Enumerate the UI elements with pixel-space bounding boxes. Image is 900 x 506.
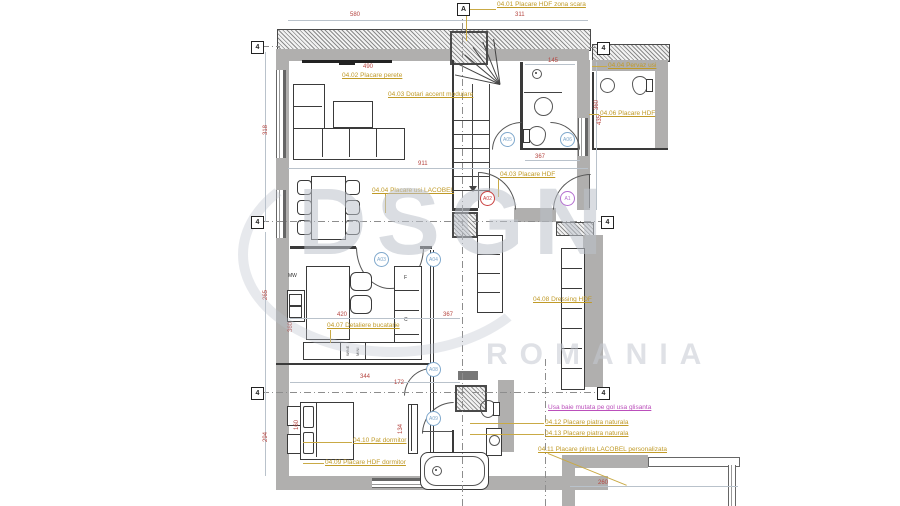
washbasin-bowl: [489, 435, 500, 446]
dim-text: 145: [548, 58, 558, 64]
dining-chair: [297, 200, 312, 215]
dim-text: 294: [263, 432, 269, 442]
dim-line: [288, 20, 588, 21]
wine-label: WINE: [345, 346, 350, 356]
dining-chair: [345, 200, 360, 215]
window-left-1: [276, 70, 286, 158]
door-tag: A06: [560, 132, 575, 147]
dim-line: [525, 64, 575, 65]
wall-wc-bottom: [592, 148, 668, 150]
leader-line: [589, 114, 599, 115]
door-tag: A04: [426, 252, 441, 267]
door-tag: A02: [480, 191, 495, 206]
dim-text: 160: [294, 420, 300, 430]
door-tag: A03: [374, 252, 389, 267]
stair-walkline: [472, 84, 473, 186]
annotation: 04.13 Placare piatra naturala: [545, 430, 628, 437]
grid-line-4-mid: [262, 221, 604, 222]
floor-drain-icon: [532, 69, 542, 79]
door-tag: A1: [560, 191, 575, 206]
toilet-bottom-tank: [493, 402, 500, 416]
floor-drain-dot: [535, 72, 537, 74]
bathtub-drain-dot: [435, 469, 437, 471]
dim-text: 367: [535, 154, 545, 160]
annotation: 04.02 Placare perete: [342, 72, 402, 79]
pillow: [303, 432, 314, 454]
pillow: [303, 406, 314, 428]
microwave-label: MW: [288, 274, 297, 279]
sofa-cushion-line: [322, 129, 323, 157]
sink-top-icon: [534, 97, 553, 116]
dim-text: 360: [594, 100, 600, 110]
detail-wall-thin: [648, 457, 740, 467]
dim-line: [288, 168, 588, 169]
wall-hall-seg: [452, 208, 478, 211]
dim-text: 420: [337, 312, 347, 318]
dining-chair: [345, 220, 360, 235]
blanket-line: [316, 403, 317, 457]
sofa-cushion-line: [376, 129, 377, 157]
dining-chair: [297, 220, 312, 235]
grid-marker-4: 4: [251, 387, 264, 400]
annotation: 04.03 Dotari accent modulare: [388, 91, 473, 98]
dim-line: [596, 62, 597, 210]
dining-table: [311, 176, 346, 240]
dim-line: [290, 318, 460, 319]
dressing-shelf: [562, 288, 582, 289]
dressing-shelf: [562, 308, 582, 309]
coffee-table: [333, 101, 373, 128]
dim-text: 367: [443, 312, 453, 318]
radiator-line: [411, 405, 412, 451]
dim-text: 311: [515, 12, 525, 18]
annotation: 04.09 Placare HDF dormitor: [325, 459, 406, 466]
bathtub-drain: [432, 466, 442, 476]
grid-marker-4: 4: [597, 387, 610, 400]
dim-text: 134: [398, 424, 404, 434]
leader-line: [470, 434, 544, 435]
grid-marker-a: A: [457, 3, 470, 16]
dining-chair: [297, 180, 312, 195]
detail-wall-h: [562, 455, 648, 468]
bar-stool: [350, 272, 372, 291]
closet-shelf: [478, 254, 500, 255]
hall-closet: [477, 235, 503, 313]
sink-wc-icon: [600, 78, 615, 93]
annotation: 04.06 Placare HDF: [600, 110, 655, 117]
toilet-top-tank: [523, 129, 530, 143]
annotation-door-note: Usa baie mutata pe gol usa glisanta: [548, 404, 651, 411]
sofa-cushion-line: [349, 129, 350, 157]
annotation: 04.10 Pat dormitor: [353, 437, 406, 444]
leader-line: [498, 179, 499, 197]
dim-text: 318: [263, 125, 269, 135]
dressing-shelf: [562, 348, 582, 349]
annotation: 04.07 Detaliere bucatarie: [327, 322, 400, 329]
dim-text: 580: [350, 12, 360, 18]
wall-kitchen-top-1: [290, 246, 356, 249]
wall-wc-right: [655, 71, 668, 150]
dim-line: [265, 52, 266, 222]
mini-label: MINI: [355, 348, 360, 356]
grid-marker-4: 4: [251, 41, 264, 54]
radiator: [408, 404, 418, 454]
bar-stool: [350, 295, 372, 314]
leader-line: [303, 463, 324, 464]
dim-text: 265: [263, 290, 269, 300]
tall-unit-line: [395, 310, 419, 311]
leader-line: [303, 442, 352, 443]
annotation: 04.04 Pervaz usi: [608, 62, 656, 69]
wall-bedroom-top: [276, 363, 432, 365]
toilet-top-icon: [528, 126, 546, 146]
nightstand: [287, 434, 301, 454]
tall-unit-line: [395, 334, 419, 335]
annotation: 04.03 Placare HDF: [500, 171, 555, 178]
floor-plan-canvas: DSGN ROMANIA: [0, 0, 900, 506]
dim-text: 911: [418, 161, 428, 167]
annotation: 04.11 Placare plinta LACOBEL personaliza…: [538, 446, 667, 453]
dim-line: [290, 382, 460, 383]
wall-right-mid: [583, 235, 603, 387]
grid-line-4-bottom: [262, 392, 600, 393]
wall-hall: [514, 208, 556, 222]
dressing-shelf: [562, 268, 582, 269]
grid-line-4-top: [262, 46, 280, 47]
dim-line: [525, 160, 580, 161]
annotation: 04.04 Placare usi LACOBEL: [372, 187, 454, 194]
toilet-wc-tank: [646, 79, 653, 92]
grid-line-a: [462, 14, 463, 506]
dim-text: 490: [363, 64, 373, 70]
dim-text: 344: [360, 374, 370, 380]
grid-marker-4: 4: [597, 42, 610, 55]
kitchen-sink-bowl: [289, 294, 302, 306]
dim-line: [570, 486, 738, 487]
annotation: 04.01 Placare HDF zona scara: [497, 1, 586, 8]
wall-top-hatch: [277, 29, 591, 51]
sofa-cushion-line: [294, 106, 322, 107]
door-tag: A09: [426, 411, 441, 426]
dim-text: 260: [598, 480, 608, 486]
leader-line: [385, 194, 386, 213]
window-left-2: [276, 190, 286, 238]
threshold-block: [458, 371, 478, 380]
closet-shelf: [478, 273, 500, 274]
leader-line: [470, 423, 544, 424]
kitchen-sink-bowl: [289, 306, 302, 318]
dressing-shelf: [562, 328, 582, 329]
stair-arrow-head: [469, 186, 477, 192]
wall-wc-left: [592, 72, 594, 150]
dim-text: 360: [288, 322, 294, 332]
leader-line: [330, 330, 331, 343]
tv-stand: [339, 63, 355, 65]
dim-text: 172: [394, 380, 404, 386]
leader-line: [592, 66, 607, 67]
fridge-label: F: [404, 276, 407, 281]
grid-marker-4: 4: [251, 216, 264, 229]
window-right: [578, 118, 588, 156]
door-tag: A08: [426, 362, 441, 377]
annotation: 04.08 Dressing HDF: [533, 296, 592, 303]
closet-shelf: [478, 292, 500, 293]
annotation: 04.12 Placare piatra naturala: [545, 419, 628, 426]
tall-unit-line: [395, 290, 419, 291]
column-hall: [452, 212, 478, 238]
door-tag: A05: [500, 132, 515, 147]
dressing-shelf: [562, 368, 582, 369]
leader-line: [466, 9, 496, 10]
wall-hall-hatch: [556, 222, 594, 236]
dining-chair: [345, 180, 360, 195]
bath-counter: [524, 92, 562, 93]
grid-marker-4: 4: [601, 216, 614, 229]
wine-cooler: [340, 342, 366, 360]
